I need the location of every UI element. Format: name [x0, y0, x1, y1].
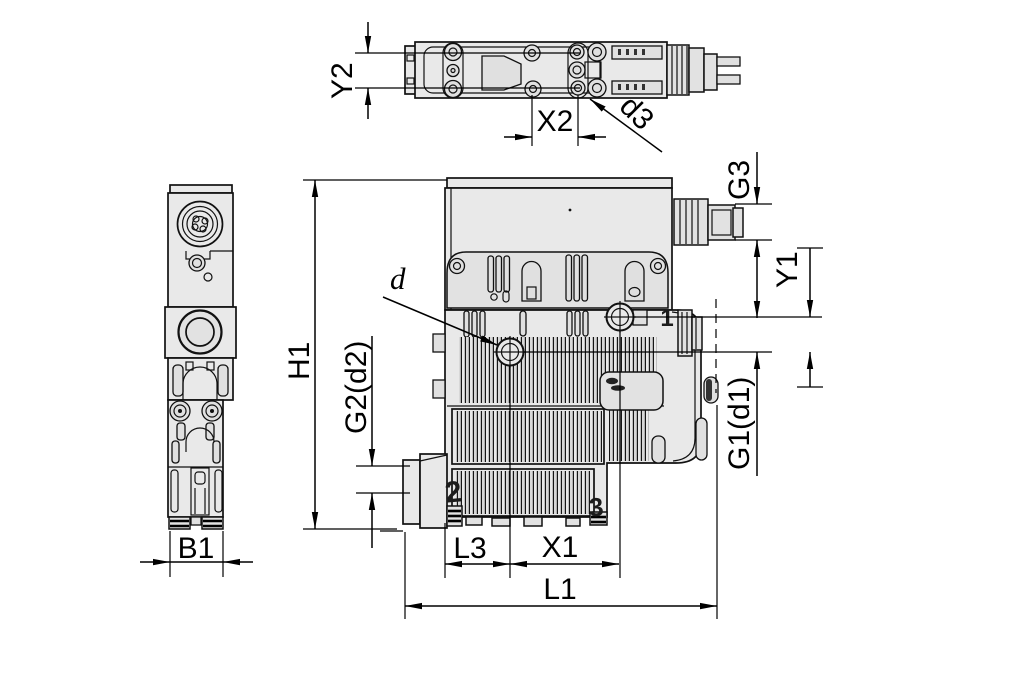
screw-icon [588, 79, 606, 97]
dim-l1-label: L1 [543, 573, 576, 606]
technical-drawing: 1 2 3 Y2 X2 d3 [0, 0, 1010, 673]
dim-l3-label: L3 [453, 532, 486, 565]
plug-pin [717, 75, 740, 84]
side-view [165, 185, 236, 529]
silencer-fins [609, 409, 649, 461]
screw-icon [189, 255, 205, 271]
dim-y1-label: Y1 [771, 251, 804, 288]
dim-x1: X1 [510, 531, 619, 564]
dim-y2-label: Y2 [326, 62, 359, 99]
silencer-fins [454, 411, 602, 462]
dim-l1: L1 [405, 573, 717, 606]
dim-g1d1-label: G1(d1) [723, 377, 756, 470]
connector-nut [667, 45, 689, 95]
dim-d3: d3 [590, 90, 662, 152]
plug-pin [717, 57, 740, 66]
front-view: 1 2 3 [403, 178, 743, 528]
dim-g1d1: G1(d1) [723, 352, 757, 476]
screw-icon [445, 81, 462, 98]
dim-l3: L3 [445, 532, 510, 565]
screw-icon [450, 259, 465, 274]
port3-marker: 3 [588, 491, 605, 522]
dim-x1-label: X1 [542, 531, 579, 564]
port2-marker: 2 [443, 475, 463, 509]
silencer-fins [454, 471, 592, 514]
dim-h1-label: H1 [283, 342, 316, 380]
screw-icon [570, 45, 584, 59]
dim-g2d2: G2(d2) [340, 336, 410, 548]
screw-icon [445, 44, 462, 61]
top-view [405, 42, 740, 98]
port1-marker: 1 [660, 305, 673, 332]
port2-fitting [403, 460, 420, 524]
dim-g2d2-label: G2(d2) [340, 341, 373, 434]
dim-b1: B1 [140, 531, 253, 577]
dim-x2-label: X2 [537, 105, 574, 138]
connector-nut [674, 199, 708, 245]
screw-icon [525, 81, 541, 97]
dim-b1-label: B1 [178, 532, 215, 565]
indicator-button [625, 262, 644, 302]
screw-icon [588, 43, 606, 61]
dim-d-label: d [390, 261, 406, 296]
dim-x2: X2 [504, 95, 606, 146]
type-label [600, 372, 663, 410]
side-view-upper-body [168, 193, 233, 307]
indicator-button [522, 262, 541, 302]
screw-icon [651, 259, 666, 274]
drawing-canvas: 1 2 3 Y2 X2 d3 [0, 0, 1010, 673]
dim-g3-label: G3 [723, 160, 756, 200]
